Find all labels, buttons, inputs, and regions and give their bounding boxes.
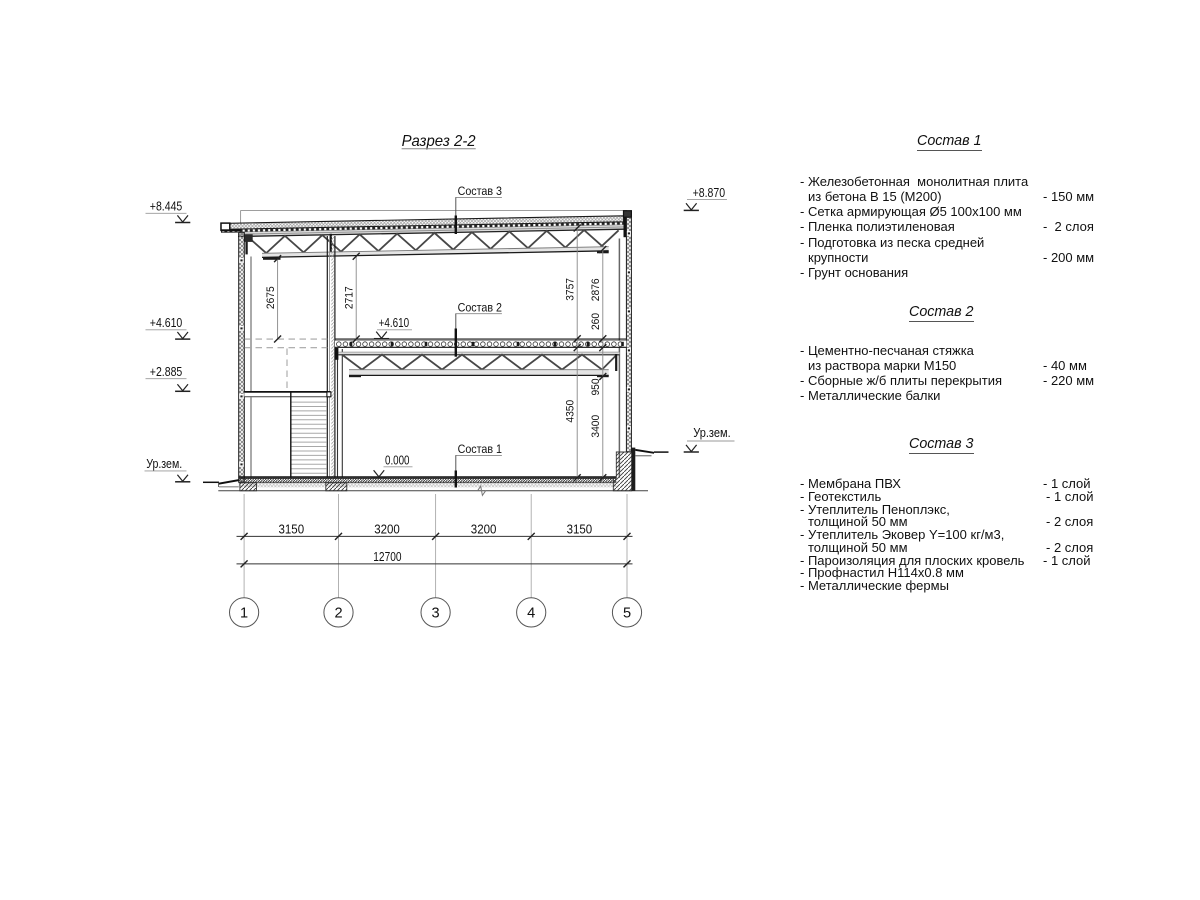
svg-text:Разрез 2-2: Разрез 2-2 (402, 133, 476, 150)
